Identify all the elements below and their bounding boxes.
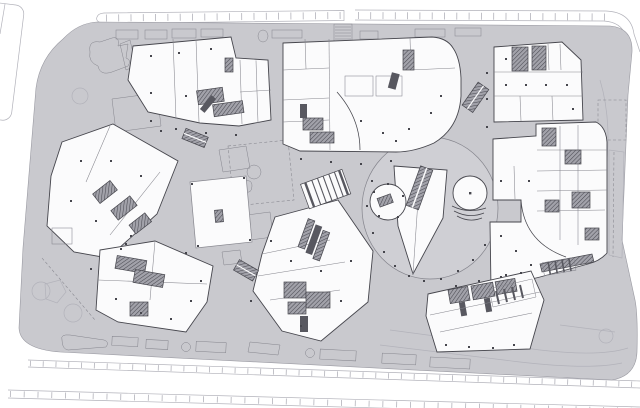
center-pavilion	[190, 176, 252, 248]
building-north-center	[283, 37, 461, 152]
site-plan	[0, 0, 640, 408]
round-stage-west	[370, 183, 406, 220]
building-northeast	[494, 42, 583, 122]
site-plan-canvas	[0, 0, 640, 408]
neighbor-block-outline	[0, 1, 25, 121]
round-stage-east	[453, 176, 487, 210]
